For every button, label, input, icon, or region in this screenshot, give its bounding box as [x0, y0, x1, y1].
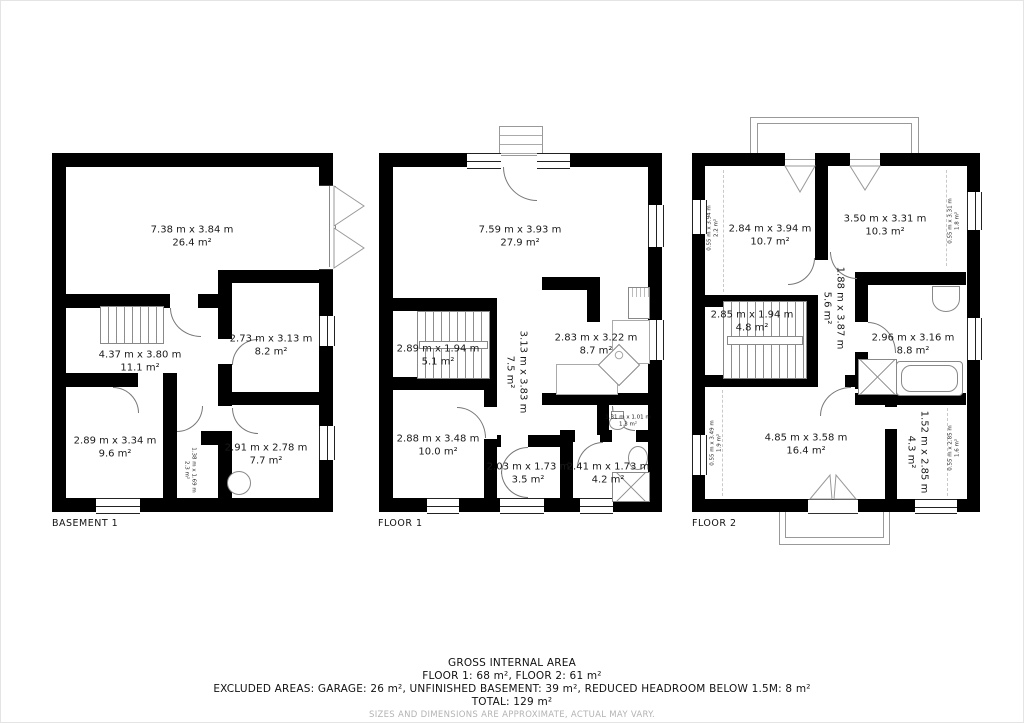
wall	[163, 431, 177, 445]
headroom-strip-label: 0.55 m x 3.94 m2.2 m²	[706, 205, 719, 250]
wall	[600, 430, 612, 442]
sink	[932, 286, 960, 312]
wall	[52, 153, 333, 167]
window	[967, 318, 982, 360]
window	[967, 192, 982, 230]
wall	[885, 429, 897, 499]
plan-title: FLOOR 2	[692, 518, 737, 529]
window	[500, 498, 544, 514]
wall	[855, 272, 966, 285]
room-label: 3.13 m x 3.83 m7.5 m²	[504, 331, 529, 414]
room-label: 1.31 m x 1.01 m1.3 m²	[605, 414, 650, 427]
room-label: 1.52 m x 2.85 m4.3 m²	[905, 411, 930, 494]
window	[580, 498, 613, 514]
balcony-door-sill	[808, 499, 858, 514]
room-label: 2.88 m x 3.48 m10.0 m²	[397, 434, 480, 459]
water-tank	[227, 471, 251, 495]
wall	[885, 393, 897, 407]
wall	[379, 298, 497, 311]
wall	[528, 435, 563, 447]
room-label: 1.38 m x 1.69 m2.3 m²	[183, 447, 196, 492]
window	[915, 499, 957, 514]
wall	[319, 268, 333, 512]
wall	[855, 272, 868, 322]
room-label: 2.96 m x 3.16 m8.8 m²	[872, 333, 955, 358]
wall	[52, 153, 66, 512]
headroom-strip-label: 0.55 m x 2.85 m1.6 m²	[947, 425, 960, 470]
stair-landing	[727, 336, 803, 345]
room-label: 2.91 m x 2.78 m7.7 m²	[225, 443, 308, 468]
window	[648, 205, 664, 247]
kitchen-sink-unit	[628, 287, 650, 319]
wall	[319, 153, 333, 185]
wall	[692, 153, 785, 166]
wall	[52, 498, 333, 512]
summary-total: TOTAL: 129 m²	[0, 696, 1024, 709]
room-label: 4.37 m x 3.80 m11.1 m²	[99, 350, 182, 375]
window	[692, 200, 707, 234]
window	[427, 498, 459, 514]
window	[537, 153, 570, 169]
wall	[648, 153, 662, 205]
wall	[880, 153, 980, 166]
summary-disclaimer: SIZES AND DIMENSIONS ARE APPROXIMATE, AC…	[0, 709, 1024, 722]
room-label: 2.03 m x 1.73 m3.5 m²	[487, 462, 570, 487]
plan-title: BASEMENT 1	[52, 518, 118, 529]
entry-steps	[499, 126, 543, 156]
floorplan-sheet: 7.38 m x 3.84 m26.4 m² 4.37 m x 3.80 m11…	[0, 0, 1024, 723]
room-label: 4.85 m x 3.58 m16.4 m²	[765, 433, 848, 458]
window	[648, 320, 664, 360]
wall	[636, 430, 662, 442]
window	[319, 316, 335, 346]
shower	[858, 359, 897, 395]
room-label: 2.89 m x 1.94 m5.1 m²	[397, 344, 480, 369]
window	[467, 153, 501, 169]
room-label: 7.59 m x 3.93 m27.9 m²	[479, 225, 562, 250]
area-summary: GROSS INTERNAL AREA FLOOR 1: 68 m², FLOO…	[0, 657, 1024, 722]
window	[96, 498, 140, 514]
door-arc	[820, 387, 851, 416]
room-label: 2.73 m x 3.13 m8.2 m²	[230, 334, 313, 359]
wall	[379, 153, 393, 512]
summary-title: GROSS INTERNAL AREA	[0, 657, 1024, 670]
wall	[218, 270, 333, 283]
room-label: 2.84 m x 3.94 m10.7 m²	[729, 224, 812, 249]
room-label: 3.50 m x 3.31 m10.3 m²	[844, 214, 927, 239]
wall	[218, 287, 232, 339]
window	[692, 435, 707, 475]
window	[319, 426, 335, 460]
wall	[648, 247, 662, 320]
headroom-strip-label: 0.55 m x 3.31 m1.8 m²	[947, 198, 960, 243]
room-label: 7.38 m x 3.84 m26.4 m²	[151, 225, 234, 250]
wall	[52, 373, 138, 387]
wall	[218, 392, 333, 405]
summary-floors: FLOOR 1: 68 m², FLOOR 2: 61 m²	[0, 670, 1024, 683]
summary-excluded: EXCLUDED AREAS: GARAGE: 26 m², UNFINISHE…	[0, 683, 1024, 696]
room-label: 2.85 m x 1.94 m4.8 m²	[711, 310, 794, 335]
wall	[692, 499, 808, 512]
wall	[815, 166, 828, 260]
bathtub-inner	[901, 365, 958, 392]
room-label: 2.41 m x 1.73 m4.2 m²	[567, 462, 650, 487]
stairs	[100, 306, 164, 344]
wall	[497, 435, 501, 447]
door-arc	[788, 258, 815, 285]
room-label: 1.88 m x 3.87 m5.6 m²	[821, 267, 846, 350]
wall	[587, 277, 600, 322]
wall	[815, 153, 850, 166]
headroom-strip-label: 0.55 m x 3.49 m1.9 m²	[709, 420, 722, 465]
room-label: 2.83 m x 3.22 m8.7 m²	[555, 333, 638, 358]
room-label: 2.89 m x 3.34 m9.6 m²	[74, 436, 157, 461]
plan-title: FLOOR 1	[378, 518, 423, 529]
garage-door-panel	[329, 186, 336, 267]
headroom-line	[723, 170, 724, 292]
